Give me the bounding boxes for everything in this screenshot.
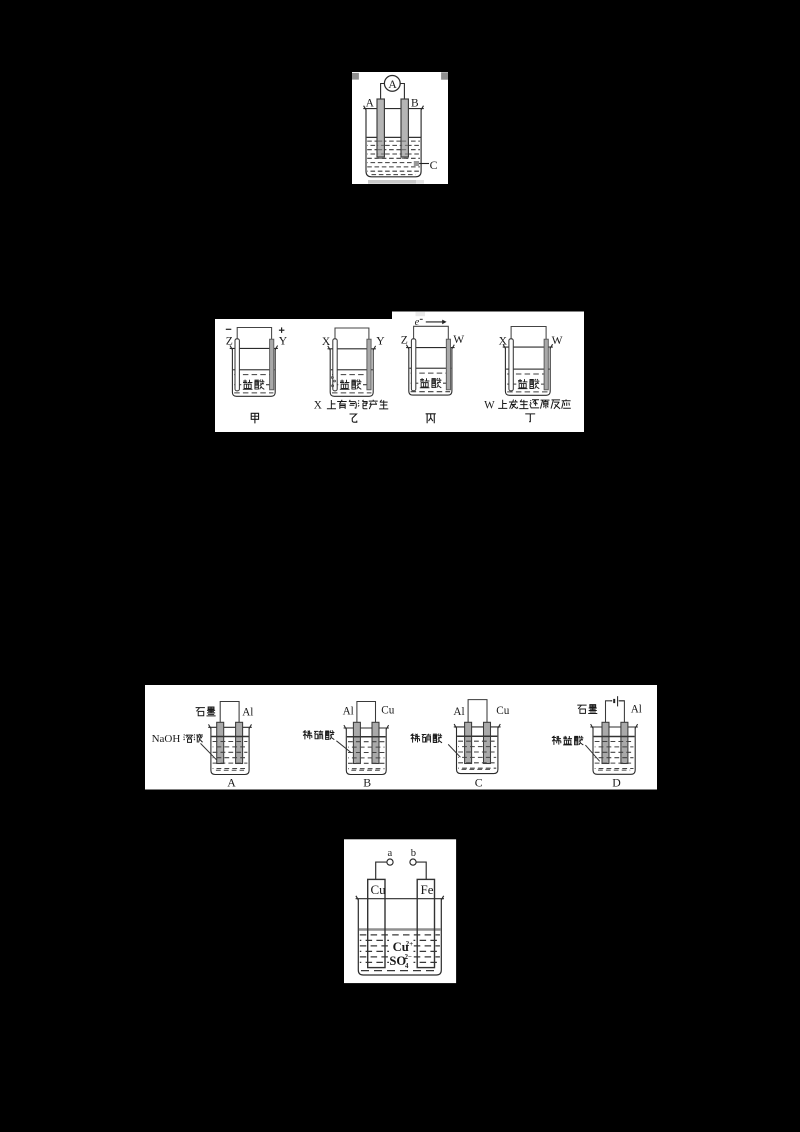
svg-text:W: W (552, 334, 563, 347)
svg-text:C: C (475, 775, 483, 789)
svg-text:A: A (227, 775, 236, 789)
svg-text:Cu: Cu (381, 705, 394, 717)
svg-text:X: X (314, 400, 322, 412)
svg-text:X: X (322, 335, 331, 348)
svg-text:Fe: Fe (421, 882, 434, 897)
svg-text:X: X (499, 335, 508, 348)
svg-text:b: b (411, 848, 416, 859)
svg-text:NaOH: NaOH (152, 733, 181, 745)
svg-text:Cu: Cu (496, 705, 509, 717)
svg-text:2+: 2+ (406, 941, 413, 948)
svg-text:Al: Al (343, 705, 354, 717)
svg-text:A: A (388, 78, 397, 91)
svg-text:Z: Z (226, 335, 233, 348)
svg-text:B: B (363, 775, 371, 789)
svg-text:Cu: Cu (371, 882, 387, 897)
svg-text:Y: Y (279, 335, 288, 348)
svg-text:4: 4 (405, 963, 409, 970)
svg-text:C: C (430, 158, 438, 172)
svg-text:a: a (388, 848, 393, 859)
svg-text:A: A (366, 98, 375, 110)
svg-text:W: W (484, 399, 495, 411)
svg-text:W: W (453, 333, 464, 346)
svg-text:Al: Al (631, 704, 642, 716)
svg-text:2−: 2− (405, 954, 412, 961)
svg-text:Z: Z (401, 334, 408, 347)
svg-text:Y: Y (376, 335, 385, 348)
svg-text:Al: Al (242, 706, 253, 718)
svg-text:B: B (411, 98, 419, 110)
svg-text:D: D (612, 775, 621, 789)
svg-text:e: e (415, 317, 420, 328)
svg-text:Al: Al (453, 706, 464, 718)
